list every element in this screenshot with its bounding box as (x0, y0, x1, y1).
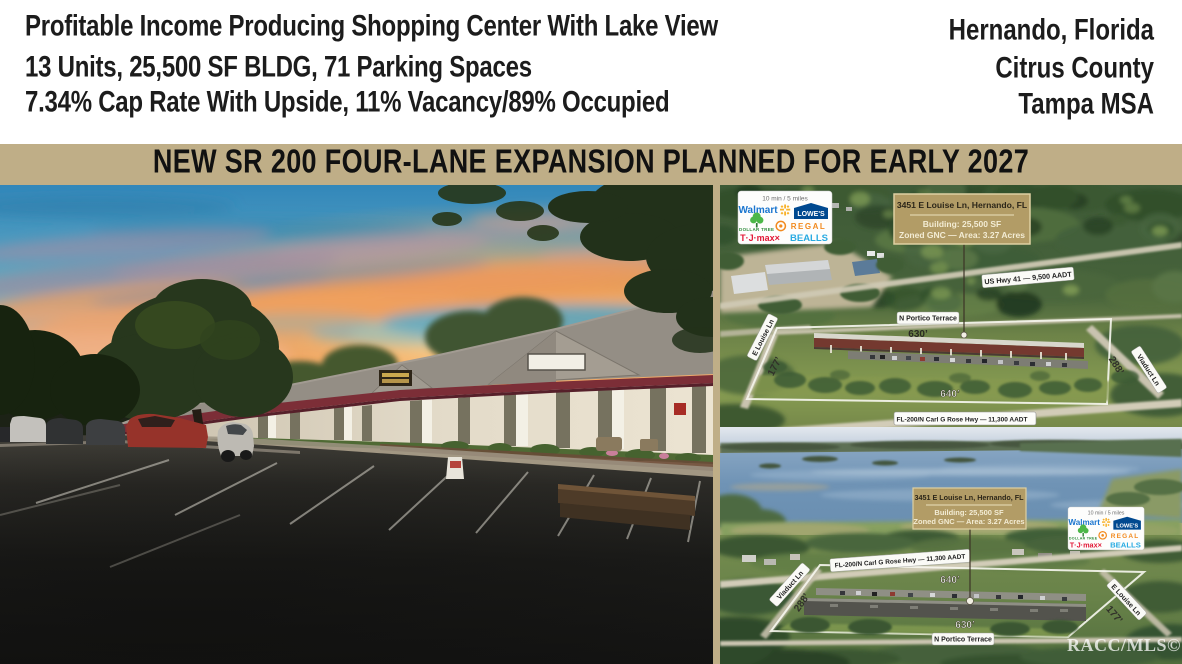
svg-text:T·J·max×: T·J·max× (740, 233, 780, 243)
svg-text:3451 E Louise Ln, Hernando, FL: 3451 E Louise Ln, Hernando, FL (914, 493, 1024, 502)
svg-text:N Portico Terrace: N Portico Terrace (899, 316, 957, 323)
svg-text:3451 E Louise Ln, Hernando, FL: 3451 E Louise Ln, Hernando, FL (897, 200, 1027, 210)
svg-text:Zoned GNC — Area: 3.27 Acres: Zoned GNC — Area: 3.27 Acres (913, 517, 1024, 526)
svg-text:640’: 640’ (940, 575, 960, 586)
svg-text:N Portico Terrace: N Portico Terrace (934, 637, 992, 644)
svg-text:630’: 630’ (908, 329, 928, 340)
svg-text:FL-200/N Carl G Rose Hwy — 11,: FL-200/N Carl G Rose Hwy — 11,300 AADT (897, 417, 1028, 424)
svg-text:10 min / 5 miles: 10 min / 5 miles (762, 196, 808, 203)
svg-text:630’: 630’ (955, 620, 975, 631)
svg-text:640’: 640’ (940, 389, 960, 400)
svg-text:REGAL: REGAL (791, 222, 827, 231)
svg-text:Building: 25,500 SF: Building: 25,500 SF (923, 219, 1001, 229)
svg-text:LOWE'S: LOWE'S (797, 211, 825, 218)
svg-text:Building: 25,500 SF: Building: 25,500 SF (934, 508, 1004, 517)
svg-text:DOLLAR TREE: DOLLAR TREE (739, 227, 774, 232)
svg-text:BEALLS: BEALLS (790, 233, 828, 244)
svg-text:Zoned GNC — Area: 3.27 Acres: Zoned GNC — Area: 3.27 Acres (899, 230, 1025, 240)
